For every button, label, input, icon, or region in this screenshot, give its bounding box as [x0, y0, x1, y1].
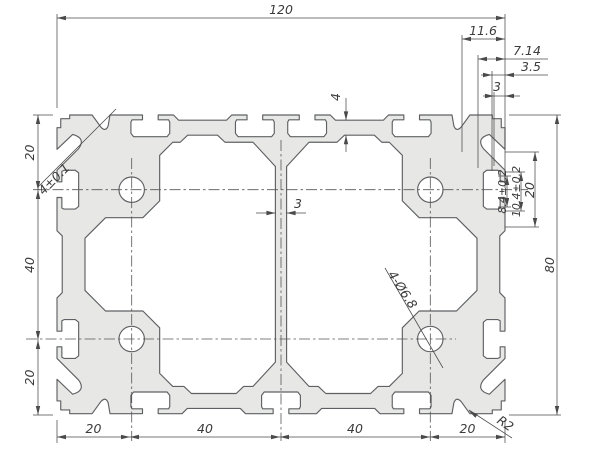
dim-web-thickness: 3: [294, 196, 302, 211]
dim-left-20-top: 20: [22, 145, 37, 161]
dim-hole-callout: 4-Ø6.8: [385, 268, 421, 312]
dim-detail-11-6: 11.6: [469, 23, 497, 38]
dim-bottom-40-left: 40: [197, 421, 213, 436]
dim-overall-height: 80: [542, 257, 557, 273]
technical-drawing: 120 11.6 7.14 3.5 3 20 40 20 20 40 40 20…: [0, 0, 600, 450]
dim-bottom-20-left: 20: [86, 421, 102, 436]
dim-slot-20: 20: [522, 182, 537, 198]
dim-wall-thickness: 4: [328, 93, 343, 101]
dim-bottom-40-right: 40: [347, 421, 363, 436]
dim-left-40: 40: [22, 257, 37, 273]
dim-slot-8-4: 8.4±0.2: [496, 169, 509, 213]
dim-left-20-bottom: 20: [22, 370, 37, 386]
dim-detail-7-14: 7.14: [513, 43, 541, 58]
dim-corner-radius: R2: [494, 412, 516, 434]
dim-detail-3-5: 3.5: [521, 59, 541, 74]
dim-overall-width: 120: [269, 2, 293, 17]
dim-detail-3: 3: [493, 79, 501, 94]
drawing-page: 120 11.6 7.14 3.5 3 20 40 20 20 40 40 20…: [0, 0, 600, 450]
dim-corner-slot: 4±0.1: [35, 160, 73, 198]
dim-bottom-20-right: 20: [460, 421, 476, 436]
